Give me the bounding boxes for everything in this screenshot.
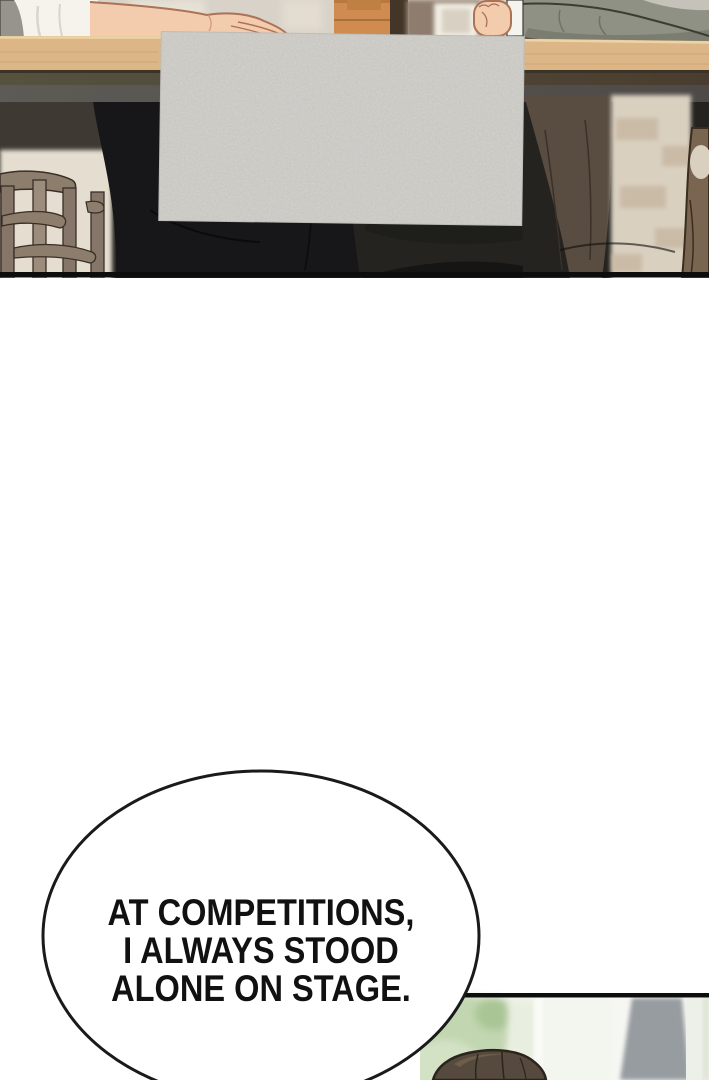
gray-wall-band <box>620 998 690 1080</box>
comic-page: AT COMPETITIONS, I ALWAYS STOOD ALONE ON… <box>0 0 709 1080</box>
bubble-line-3: ALONE ON STAGE. <box>85 970 437 1008</box>
paper-sheet <box>159 31 525 225</box>
bubble-line-2: I ALWAYS STOOD <box>85 932 437 970</box>
speech-bubble-text: AT COMPETITIONS, I ALWAYS STOOD ALONE ON… <box>85 894 437 1008</box>
bubble-line-1: AT COMPETITIONS, <box>85 894 437 932</box>
top-panel-border <box>0 272 709 277</box>
top-panel-illustration <box>0 0 709 278</box>
